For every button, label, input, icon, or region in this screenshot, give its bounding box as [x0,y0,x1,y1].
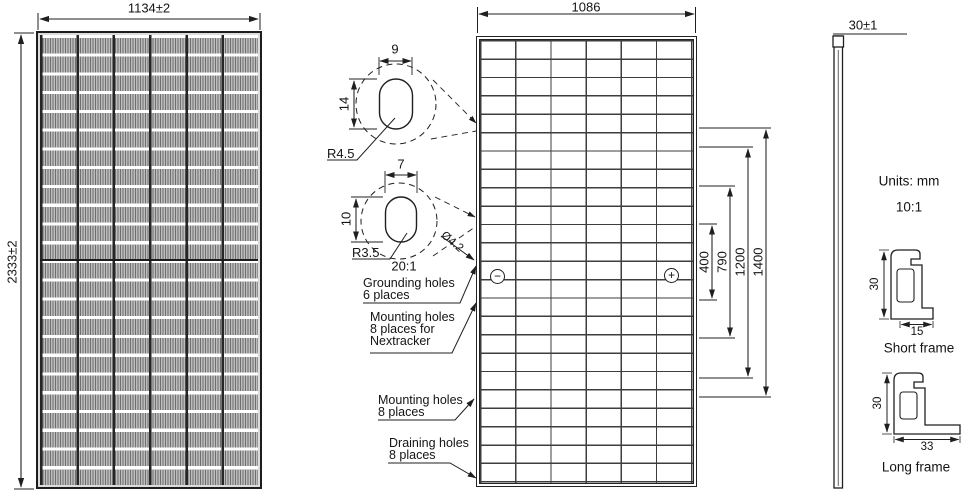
detail-top-width-label: 9 [391,42,398,57]
detail-top-radius-label: R4.5 [327,146,354,161]
front-width-label: 1134±2 [128,1,170,16]
span-dim-1400-label: 1400 [751,248,766,277]
long-frame-label: Long frame [882,460,950,475]
back-view-cell-grid [479,39,694,484]
long-frame-height-label: 30 [872,397,884,410]
draining-holes-line2: 8 places [389,449,469,461]
mounting-holes-line2: 8 places [378,406,463,418]
detail-top-height-label: 14 [337,97,352,111]
units-label: Units: mm [879,174,940,189]
mounting-nextracker-line3: Nextracker [370,335,455,347]
front-width-dimension [38,13,260,30]
drawing-scale-label: 10:1 [896,200,922,215]
front-view-panel [36,31,262,489]
grounding-holes-callout: Grounding holes 6 places [363,277,455,301]
back-width-label: 1086 [572,0,601,15]
grounding-holes-line2: 6 places [363,289,455,301]
mounting-nextracker-callout: Mounting holes 8 places for Nextracker [370,311,455,347]
side-thickness-label: 30±1 [849,18,878,33]
span-dim-790-label: 790 [715,251,730,273]
back-view-panel [476,36,697,487]
side-view [833,34,907,488]
detail-bottom-height-label: 10 [339,212,354,226]
short-frame-label: Short frame [884,341,955,356]
negative-terminal-symbol: − [490,269,505,284]
positive-terminal-symbol: + [664,268,679,283]
technical-drawing: 1134±2 2333±2 1086 400 790 1200 1400 9 1… [0,0,969,496]
detail-bottom-radius-label: R3.5 [352,245,379,260]
long-frame-section [882,373,960,443]
hole-diameter-label: Ø4.2 [439,229,466,254]
front-height-label: 2333±2 [5,240,20,283]
span-dim-1200-label: 1200 [733,248,748,277]
short-frame-section [879,250,933,328]
span-dim-400-label: 400 [697,251,712,273]
detail-scale-label: 20:1 [391,259,416,274]
front-view-cell-grid [40,35,258,485]
draining-holes-callout: Draining holes 8 places [389,437,469,461]
detail-bottom-width-label: 7 [397,157,404,172]
short-frame-height-label: 30 [869,278,881,291]
mounting-holes-callout: Mounting holes 8 places [378,394,463,418]
short-frame-width-label: 15 [911,326,924,338]
long-frame-width-label: 33 [921,441,934,453]
